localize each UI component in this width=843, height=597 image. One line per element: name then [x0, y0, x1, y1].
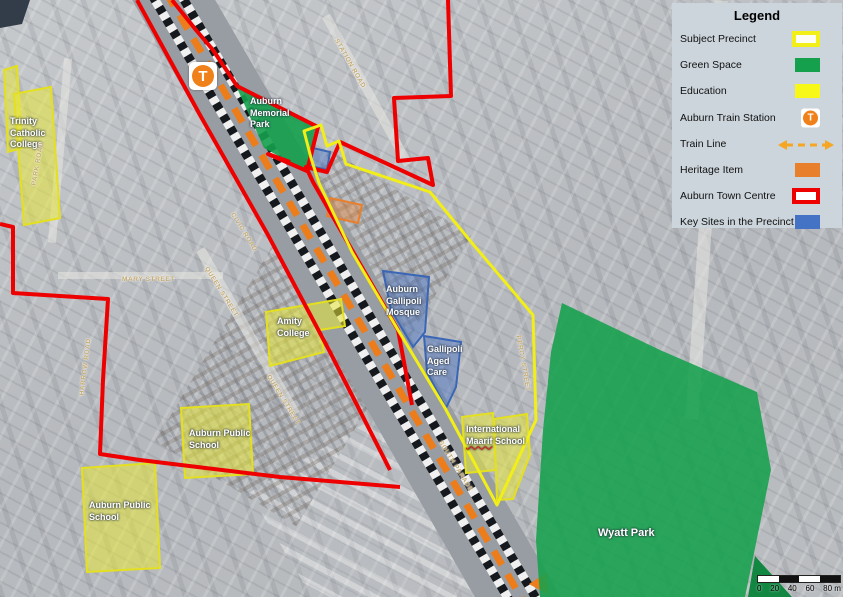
legend-row-key-sites: Key Sites in the Precinct [672, 209, 842, 235]
label-wyatt-park: Wyatt Park [598, 526, 655, 540]
street-label-mary-street: MARY STREET [122, 276, 175, 283]
label-auburn-gallipoli-mosque: Auburn Gallipoli Mosque [386, 284, 438, 319]
train-line-swatch [778, 138, 834, 150]
legend-title: Legend [672, 8, 842, 23]
green-space-swatch [795, 58, 820, 72]
legend-panel: Legend Subject Precinct Green Space Educ… [672, 3, 842, 228]
legend-row-train-line: Train Line [672, 131, 842, 157]
key-sites-swatch [795, 215, 820, 229]
scale-bar-labels: 0 20 40 60 80 m [757, 584, 841, 593]
green-space-wyatt-park [536, 303, 771, 597]
scale-bar-segments [757, 575, 841, 583]
train-station-swatch-icon: T [801, 108, 820, 127]
label-auburn-public-school-south: Auburn Public School [89, 500, 161, 523]
legend-row-subject-precinct: Subject Precinct [672, 26, 842, 52]
legend-row-train-station: Auburn Train Station T [672, 105, 842, 131]
legend-row-green-space: Green Space [672, 52, 842, 78]
legend-row-heritage-item: Heritage Item [672, 157, 842, 183]
label-gallipoli-aged-care: Gallipoli Aged Care [427, 344, 471, 379]
town-centre-swatch [792, 188, 820, 204]
label-international-maarif-school: International Maarif School [466, 424, 530, 447]
subject-precinct-swatch [792, 31, 820, 47]
train-station-icon: T [189, 62, 217, 90]
education-swatch [795, 84, 820, 98]
train-line [166, 0, 526, 597]
label-trinity-catholic-college: Trinity Catholic College [10, 116, 56, 151]
legend-row-town-centre: Auburn Town Centre [672, 183, 842, 209]
heritage-item-swatch [795, 163, 820, 177]
map-figure: T Trinity Catholic College Auburn Memori… [0, 0, 843, 597]
label-auburn-public-school-north: Auburn Public School [189, 428, 261, 451]
legend-row-education: Education [672, 78, 842, 104]
scale-bar: 0 20 40 60 80 m [757, 575, 841, 593]
label-amity-college: Amity College [277, 316, 321, 339]
label-auburn-memorial-park: Auburn Memorial Park [250, 96, 302, 131]
